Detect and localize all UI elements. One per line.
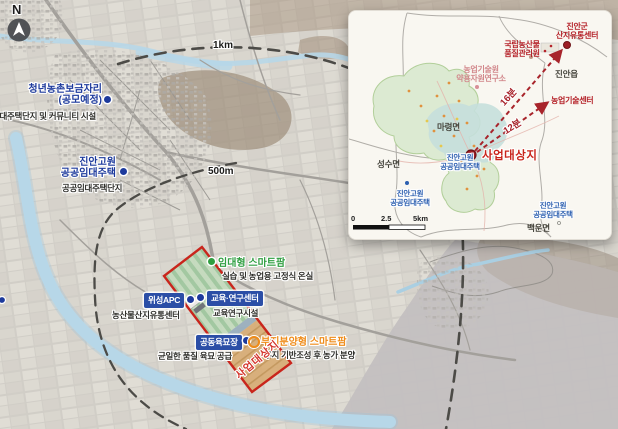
inset-scale-mid: 2.5: [381, 214, 391, 223]
label-rental-smartfarm: 임대형 스마트팜: [218, 254, 285, 269]
jinan-housing-marker: [120, 168, 127, 175]
inset-region-baekun: 백운면: [527, 222, 550, 234]
label-nursery: 공동육묘장: [196, 335, 242, 350]
label-jinan-housing-line1: 진안고원: [20, 157, 116, 168]
north-arrow-icon: [0, 0, 44, 48]
inset-label-herb: 농업기술원 약용자원연구소: [448, 65, 514, 83]
inset-label-quality-line2: 품질관리원: [491, 49, 553, 58]
label-satellite-apc: 위성APC: [144, 293, 184, 308]
inset-housing-near-line2: 공공임대주택: [431, 163, 489, 172]
label-jinan-housing-line2: 공공임대주택: [20, 168, 116, 179]
label-edu-research: 교육·연구센터: [207, 291, 263, 306]
inset-region-seongsu: 성수면: [377, 158, 400, 170]
inset-map: 진안군 산지유통센터 국립농산물 품질관리원 농업기술원 약용자원연구소 농업기…: [348, 10, 612, 240]
youth-housing-marker: [104, 96, 111, 103]
inset-label-sanji-line2: 산지유통센터: [545, 31, 609, 40]
label-nursery-desc: 균일한 품질 육묘 공급: [158, 350, 232, 362]
label-youth-desc: 임대주택단지 및 커뮤니티 시설: [0, 110, 96, 122]
label-youth-title: 청년농촌보금자리: [0, 84, 102, 95]
label-satellite-apc-desc: 농산물산지유통센터: [112, 309, 180, 321]
map-container: N 1km 500m 청년농촌보금자리 (공모예정) 임대주택단지 및 커뮤니티…: [0, 0, 618, 429]
inset-housing-sw-line2: 공공임대주택: [381, 199, 439, 208]
inset-label-agtech: 농업기술센터: [551, 96, 593, 105]
label-rental-smartfarm-desc: 실습 및 농업용 고정식 온실: [222, 270, 313, 282]
inset-site-label: 사업대상지: [482, 147, 537, 163]
inset-region-maryeong: 마령면: [437, 121, 460, 133]
label-youth-housing: 청년농촌보금자리 (공모예정): [0, 84, 102, 106]
label-jinan-housing-desc: 공공임대주택단지: [62, 182, 122, 194]
ring-label-1km: 1km: [213, 40, 233, 51]
ring-label-500m: 500m: [208, 166, 234, 177]
inset-label-herb-line2: 약용자원연구소: [448, 74, 514, 83]
label-edu-research-desc: 교육연구시설: [213, 307, 258, 319]
inset-label-sanji-line1: 진안군: [545, 22, 609, 31]
inset-region-jinaneup: 진안읍: [555, 68, 578, 80]
inset-label-housing-near: 진안고원 공공임대주택: [431, 154, 489, 171]
inset-scale-0: 0: [351, 214, 355, 223]
lot-smartfarm-marker: [248, 336, 260, 348]
label-youth-subtitle: (공모예정): [0, 95, 102, 106]
inset-label-housing-southeast: 진안고원 공공임대주택: [524, 202, 582, 219]
inset-label-sanji: 진안군 산지유통센터: [545, 22, 609, 40]
inset-label-herb-line1: 농업기술원: [448, 65, 514, 74]
inset-label-quality: 국립농산물 품질관리원: [491, 40, 553, 58]
inset-label-housing-southwest: 진안고원 공공임대주택: [381, 190, 439, 207]
label-jinan-housing: 진안고원 공공임대주택: [20, 157, 116, 179]
inset-label-quality-line1: 국립농산물: [491, 40, 553, 49]
inset-housing-se-line2: 공공임대주택: [524, 211, 582, 220]
edu-research-marker: [197, 294, 204, 301]
rental-smartfarm-marker: [208, 258, 215, 265]
satellite-apc-marker: [187, 296, 194, 303]
inset-scale-end: 5km: [413, 214, 428, 223]
